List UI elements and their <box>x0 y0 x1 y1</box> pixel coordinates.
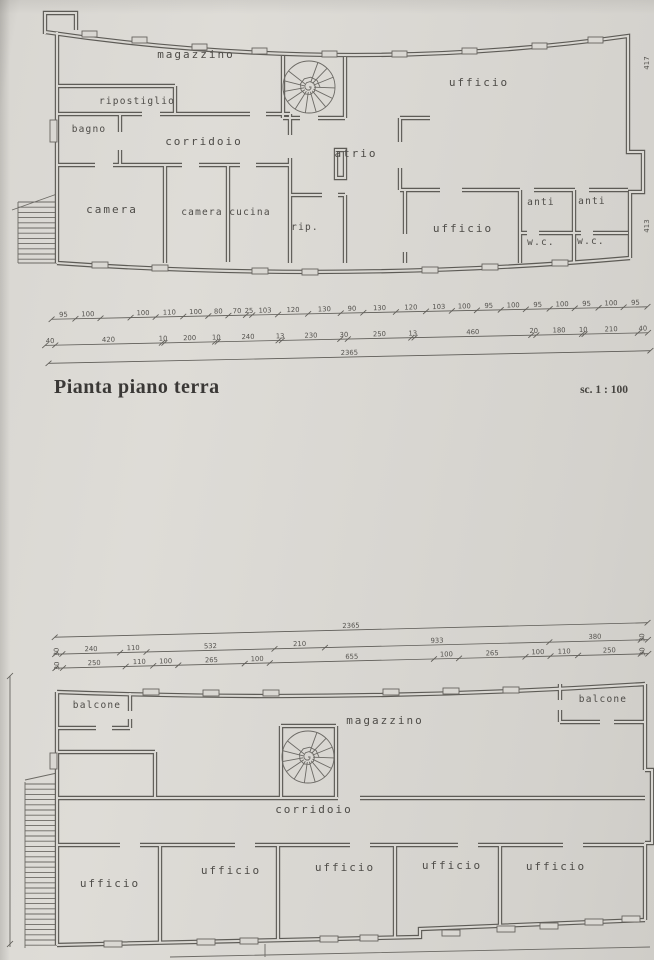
scale-label: sc. 1 : 100 <box>580 384 628 396</box>
window <box>50 753 57 769</box>
exterior-stair-outline <box>12 194 57 263</box>
room-label-ufficio-1: ufficio <box>80 877 140 890</box>
dimension-label: 120 <box>404 303 417 311</box>
dimension-label: 100 <box>604 299 617 307</box>
dimension-label: 2365 <box>342 622 360 630</box>
dimension-label: 100 <box>531 648 544 656</box>
window <box>497 926 515 932</box>
room-label-camera-2: camera <box>181 207 223 218</box>
window <box>552 260 568 266</box>
window <box>252 268 268 274</box>
caption-row: Pianta piano terra sc. 1 : 100 <box>54 376 628 399</box>
room-label-ufficio-4: ufficio <box>422 859 482 872</box>
cut-dimension-line <box>7 673 13 947</box>
window <box>392 51 407 57</box>
terrace-edge-line <box>170 944 650 957</box>
window <box>203 690 219 696</box>
dimension-label: 265 <box>486 649 499 657</box>
room-label-ufficio-5: ufficio <box>526 860 586 873</box>
window <box>532 43 547 49</box>
window <box>322 51 337 57</box>
window <box>240 938 258 944</box>
dimension-label: 180 <box>553 326 566 334</box>
room-label-anti-2: anti <box>578 196 606 207</box>
room-label-corridoio: corridoio <box>275 803 353 816</box>
dimension-label: 100 <box>136 309 149 317</box>
spiral-staircase <box>282 731 334 783</box>
dimension-label: 200 <box>183 334 196 342</box>
window <box>482 264 498 270</box>
window <box>585 919 603 925</box>
window <box>622 916 640 922</box>
dimension-label: 130 <box>373 304 386 312</box>
dimension-label: 95 <box>59 311 68 319</box>
spiral-staircase <box>283 61 335 113</box>
floor-plan-drawing: magazzino ripostiglio bagno corridoio ca… <box>0 0 654 960</box>
window <box>92 262 108 268</box>
room-label-ufficio-2: ufficio <box>433 222 493 235</box>
window <box>422 267 438 273</box>
walls-inner-line <box>45 13 643 272</box>
window <box>443 688 459 694</box>
dimension-label: 230 <box>304 331 317 339</box>
dimension-label: 103 <box>432 303 445 311</box>
window <box>462 48 477 54</box>
dimension-label: 100 <box>251 655 264 663</box>
room-label-ufficio-1: ufficio <box>449 76 509 89</box>
dimension-label: 240 <box>241 333 254 341</box>
window <box>104 941 122 947</box>
dimension-label: 420 <box>102 336 115 344</box>
dimension-label: 30 <box>53 648 61 657</box>
side-dimension-413: 413 <box>643 219 651 232</box>
dimension-label: 95 <box>582 300 591 308</box>
room-label-bagno: bagno <box>72 124 107 135</box>
window <box>540 923 558 929</box>
window <box>302 269 318 275</box>
dimension-label: 210 <box>605 325 618 333</box>
window <box>152 265 168 271</box>
dimension-label: 130 <box>318 305 331 313</box>
dimension-label: 250 <box>88 659 101 667</box>
room-label-magazzino: magazzino <box>157 48 235 61</box>
room-label-wc-2: w.c. <box>577 236 605 247</box>
dimension-label: 40 <box>638 325 647 333</box>
exterior-stair-hatch <box>25 784 57 945</box>
dimension-label: 110 <box>163 308 176 316</box>
room-label-magazzino: magazzino <box>346 714 424 727</box>
dimension-label: 110 <box>127 644 140 652</box>
dimension-label: 25 <box>245 307 254 315</box>
dimension-label: 120 <box>286 306 299 314</box>
dimension-label: 100 <box>556 300 569 308</box>
dimension-label: 30 <box>638 647 646 656</box>
window <box>252 48 267 54</box>
dimension-label: 30 <box>638 633 646 642</box>
dimension-label: 30 <box>53 662 61 671</box>
window <box>360 935 378 941</box>
window <box>442 930 460 936</box>
window <box>320 936 338 942</box>
room-label-camera-1: camera <box>86 203 138 216</box>
dimension-label: 265 <box>205 656 218 664</box>
dimension-label: 95 <box>533 301 542 309</box>
room-label-balcone-left: balcone <box>73 700 121 711</box>
dimension-label: 95 <box>484 302 493 310</box>
first-floor-dimensions: 2365302401105322109333803030250110100265… <box>52 614 652 670</box>
dimension-label: 110 <box>558 647 571 655</box>
scanned-floor-plan-page: magazzino ripostiglio bagno corridoio ca… <box>0 0 654 960</box>
window <box>132 37 147 43</box>
window <box>50 120 57 142</box>
dimension-label: 100 <box>507 301 520 309</box>
ground-floor-dimensions: 9510010011010080702510312013090130120103… <box>41 298 653 366</box>
dimension-label: 70 <box>233 307 242 315</box>
room-label-wc-1: w.c. <box>527 237 555 248</box>
ground-floor-plan: magazzino ripostiglio bagno corridoio ca… <box>12 13 653 366</box>
dimension-label: 250 <box>603 646 616 654</box>
room-label-cucina: cucina <box>229 207 271 218</box>
window <box>263 690 279 696</box>
dimension-label: 30 <box>340 331 349 339</box>
dimension-label: 95 <box>631 299 640 307</box>
room-label-corridoio: corridoio <box>165 135 243 148</box>
dimension-label: 380 <box>588 633 601 641</box>
room-label-ripostiglio: ripostiglio <box>99 96 175 107</box>
dimension-label: 240 <box>85 645 98 653</box>
window <box>383 689 399 695</box>
dimension-label: 110 <box>133 658 146 666</box>
dimension-label: 90 <box>348 305 357 313</box>
first-floor-plan: balcone magazzino balcone corridoio uffi… <box>7 614 652 957</box>
window <box>82 31 97 37</box>
window <box>588 37 603 43</box>
side-dimension-417: 417 <box>643 56 651 69</box>
dimension-label: 100 <box>189 308 202 316</box>
dimension-label: 20 <box>529 327 538 335</box>
dimension-label: 100 <box>458 302 471 310</box>
dimension-label: 100 <box>81 310 94 318</box>
plan-title: Pianta piano terra <box>54 376 220 399</box>
room-label-rip: rip. <box>291 222 319 233</box>
window <box>503 687 519 693</box>
exterior-stair-hatch <box>18 202 57 259</box>
room-label-anti-1: anti <box>527 197 555 208</box>
dimension-label: 460 <box>466 328 479 336</box>
dimension-label: 100 <box>440 650 453 658</box>
dimension-label: 80 <box>214 307 223 315</box>
dimension-label: 933 <box>430 637 443 645</box>
window <box>143 689 159 695</box>
room-label-ufficio-3: ufficio <box>315 861 375 874</box>
dimension-label: 210 <box>293 640 306 648</box>
dimension-label: 655 <box>345 653 358 661</box>
dimension-label: 2365 <box>341 349 358 357</box>
room-label-atrio: atrio <box>334 147 377 160</box>
dimension-label: 40 <box>46 337 55 345</box>
dimension-label: 103 <box>258 306 271 314</box>
room-label-balcone-right: balcone <box>579 694 627 705</box>
dimension-label: 532 <box>204 642 217 650</box>
dimension-label: 250 <box>373 330 386 338</box>
dimension-label: 100 <box>159 657 172 665</box>
room-label-ufficio-2: ufficio <box>201 864 261 877</box>
window <box>197 939 215 945</box>
